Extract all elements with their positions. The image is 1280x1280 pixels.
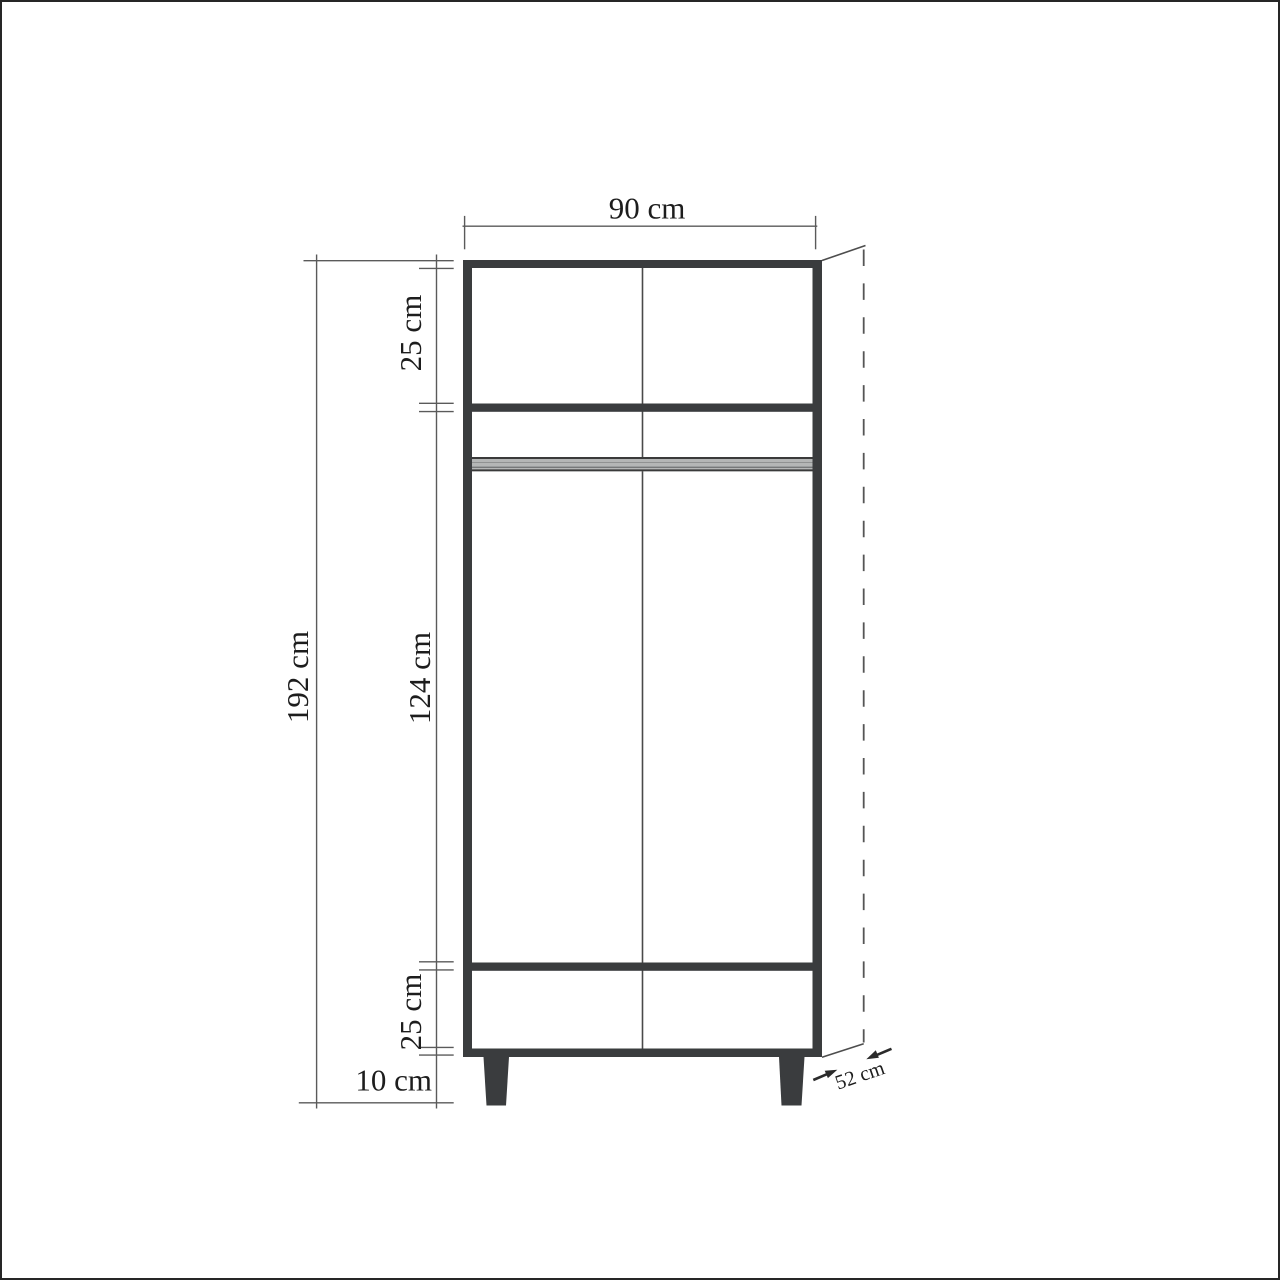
svg-text:10 cm: 10 cm: [355, 1063, 432, 1098]
svg-text:192 cm: 192 cm: [280, 631, 315, 723]
svg-text:90 cm: 90 cm: [609, 191, 686, 226]
svg-text:25 cm: 25 cm: [393, 295, 428, 372]
svg-text:25 cm: 25 cm: [393, 974, 428, 1051]
svg-text:124 cm: 124 cm: [402, 632, 437, 724]
